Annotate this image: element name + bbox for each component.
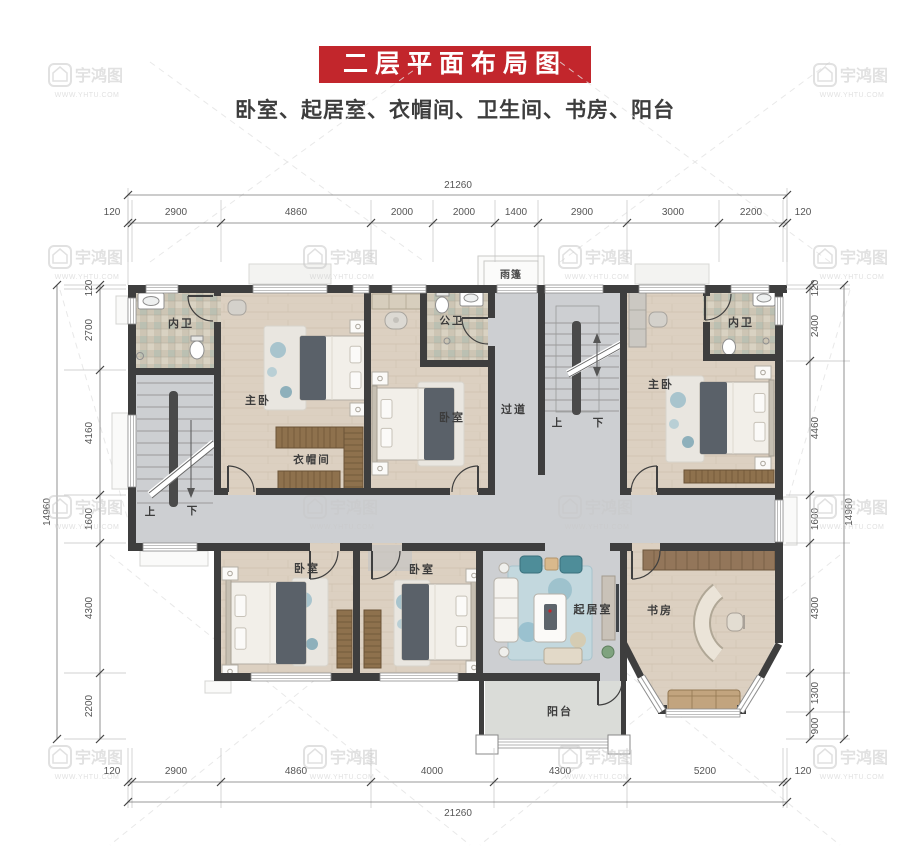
dim-label: 1400 (505, 207, 528, 218)
toilet (436, 297, 449, 313)
wall (420, 360, 495, 367)
window (639, 285, 705, 293)
dim-label: 2000 (453, 207, 476, 218)
wall (221, 543, 310, 551)
window (775, 297, 783, 325)
room-label-master-tr: 主卧 (648, 377, 674, 391)
watermark: 宇鸿图WWW.YHTU.COM (304, 246, 378, 281)
watermark: 宇鸿图WWW.YHTU.COM (559, 246, 633, 281)
dim-label: 4860 (285, 207, 308, 218)
wall (621, 681, 626, 736)
window (128, 298, 136, 324)
nightstand (372, 372, 388, 385)
watermark: 宇鸿图WWW.YHTU.COM (814, 746, 888, 781)
wall (128, 368, 221, 375)
dim-label: 2000 (391, 207, 414, 218)
wall (402, 543, 545, 551)
watermark-brand: 宇鸿图 (585, 748, 633, 767)
window (392, 285, 426, 293)
window (128, 415, 136, 487)
window (498, 739, 608, 748)
window (251, 673, 331, 681)
watermark-brand: 宇鸿图 (840, 748, 888, 767)
window-sill (116, 296, 128, 324)
watermark-url: WWW.YHTU.COM (55, 524, 120, 531)
window (545, 285, 603, 293)
dim-label: 4300 (810, 596, 821, 619)
stairs-down-label: 下 (593, 417, 606, 429)
bed (300, 334, 370, 402)
dim-label: 2400 (810, 314, 821, 337)
watermark: 宇鸿图WWW.YHTU.COM (304, 746, 378, 781)
watermark: 宇鸿图WWW.YHTU.COM (814, 496, 888, 531)
watermark-url: WWW.YHTU.COM (565, 274, 630, 281)
dim-label: 4460 (810, 416, 821, 439)
dim-label: 4000 (421, 766, 444, 777)
room-label-bath-tr: 内卫 (728, 315, 754, 329)
dim-label: 2900 (165, 207, 188, 218)
dim-label: 120 (795, 207, 812, 218)
watermark: 宇鸿图WWW.YHTU.COM (49, 496, 123, 531)
dim-label: 21260 (444, 808, 472, 819)
wardrobe (684, 470, 774, 483)
wall (221, 488, 228, 495)
dim-label: 4160 (84, 421, 95, 444)
dim-label: 5200 (694, 766, 717, 777)
wall (353, 543, 360, 681)
watermark-brand: 宇鸿图 (585, 498, 633, 517)
wall (620, 285, 627, 495)
wardrobe-gray (629, 291, 646, 347)
window (731, 285, 769, 293)
watermark-brand: 宇鸿图 (75, 748, 123, 767)
wall (214, 322, 221, 495)
dim-label: 2700 (84, 318, 95, 341)
watermark-brand: 宇鸿图 (840, 248, 888, 267)
wall (483, 673, 600, 681)
room-label-living: 起居室 (573, 602, 613, 616)
wall (538, 285, 545, 475)
sofa (494, 578, 518, 642)
wall (488, 346, 495, 495)
room-label-bed-b2: 卧室 (409, 562, 435, 576)
canopy-label: 雨篷 (500, 268, 522, 281)
watermark-url: WWW.YHTU.COM (310, 524, 375, 531)
wall (657, 488, 775, 495)
dim-label: 120 (795, 766, 812, 777)
dim-label: 1300 (810, 681, 821, 704)
toilet (190, 341, 204, 359)
window (380, 673, 458, 681)
watermark-brand: 宇鸿图 (330, 748, 378, 767)
window-sill (783, 497, 797, 545)
watermark-brand: 宇鸿图 (585, 248, 633, 267)
watermark-brand: 宇鸿图 (330, 248, 378, 267)
nightstand (350, 320, 366, 333)
wall (488, 285, 495, 318)
dim-label: 2900 (571, 207, 594, 218)
dim-label: 3000 (662, 207, 685, 218)
wall (703, 354, 782, 361)
room-label-cloak: 衣帽间 (293, 453, 331, 466)
hallway-floor (132, 495, 775, 543)
bed (226, 580, 306, 666)
watermark-url: WWW.YHTU.COM (310, 274, 375, 281)
watermark: 宇鸿图WWW.YHTU.COM (49, 64, 123, 99)
window-sill (112, 413, 128, 489)
wall (364, 285, 371, 495)
dim-label: 120 (84, 279, 95, 296)
stairs-up-label: 上 (552, 416, 565, 429)
watermark-url: WWW.YHTU.COM (565, 774, 630, 781)
window (353, 285, 369, 293)
room-label-study: 书房 (647, 603, 673, 617)
window (253, 285, 327, 293)
dim-label: 900 (810, 717, 821, 734)
dim-label: 2200 (740, 207, 763, 218)
wall (256, 488, 371, 495)
dim-label: 120 (104, 207, 121, 218)
dim-label: 21260 (444, 180, 472, 191)
nightstand (222, 567, 238, 580)
cabinet (372, 294, 422, 309)
watermark-url: WWW.YHTU.COM (820, 774, 885, 781)
watermark-brand: 宇鸿图 (330, 498, 378, 517)
wall (476, 543, 483, 681)
wall (660, 543, 783, 551)
watermark: 宇鸿图WWW.YHTU.COM (49, 746, 123, 781)
wall (620, 543, 627, 681)
watermark: 宇鸿图WWW.YHTU.COM (814, 64, 888, 99)
room-label-bath-pub: 公卫 (440, 315, 465, 327)
watermark: 宇鸿图WWW.YHTU.COM (559, 746, 633, 781)
dim-label: 2900 (165, 766, 188, 777)
wardrobe (337, 610, 352, 668)
dim-label: 4300 (84, 596, 95, 619)
window (775, 500, 783, 542)
floorplan-drawing: 雨篷 (0, 0, 910, 861)
window (146, 285, 178, 293)
watermark-url: WWW.YHTU.COM (55, 774, 120, 781)
watermark: 宇鸿图WWW.YHTU.COM (49, 246, 123, 281)
watermark-url: WWW.YHTU.COM (55, 274, 120, 281)
wall (775, 543, 783, 643)
wall (479, 681, 484, 736)
watermark-url: WWW.YHTU.COM (55, 92, 120, 99)
nightstand (755, 457, 771, 470)
window (497, 285, 537, 293)
dim-label: 2200 (84, 694, 95, 717)
corridor-floor (488, 289, 627, 495)
wardrobe (276, 427, 344, 448)
window (666, 709, 740, 717)
rain-canopy: 雨篷 (478, 256, 544, 286)
desk-chair (727, 613, 743, 631)
nightstand (350, 403, 366, 416)
watermark-url: WWW.YHTU.COM (820, 92, 885, 99)
wardrobe (364, 610, 381, 668)
watermark-url: WWW.YHTU.COM (310, 774, 375, 781)
floorplan-page: 二层平面布局图 卧室、起居室、衣帽间、卫生间、书房、阳台 (0, 0, 910, 861)
room-label-bath-tl: 内卫 (168, 316, 194, 330)
wall (703, 322, 710, 361)
watermark: 宇鸿图WWW.YHTU.COM (814, 246, 888, 281)
watermark-brand: 宇鸿图 (840, 498, 888, 517)
watermark-url: WWW.YHTU.COM (820, 524, 885, 531)
plant (602, 646, 614, 658)
dim-label: 4860 (285, 766, 308, 777)
armchair (560, 556, 582, 573)
watermark-brand: 宇鸿图 (840, 66, 888, 85)
room-label-corridor: 过道 (501, 402, 527, 416)
wall (214, 543, 221, 681)
window-sill (205, 681, 231, 693)
room-label-balcony: 阳台 (547, 704, 573, 718)
bed (402, 582, 476, 662)
room-label-bed-mid: 卧室 (439, 410, 465, 424)
ottoman (544, 648, 582, 664)
bed (372, 386, 454, 462)
dim-label: 14960 (42, 498, 53, 526)
armchair (520, 556, 542, 573)
dim-label: 120 (810, 279, 821, 296)
watermark-url: WWW.YHTU.COM (820, 274, 885, 281)
room-label-bed-b1: 卧室 (294, 561, 320, 575)
toilet (723, 339, 736, 355)
wall (420, 285, 427, 367)
wardrobe (344, 427, 363, 492)
room-label-master-tl: 主卧 (245, 393, 271, 407)
stairs-down-label: 下 (187, 505, 200, 517)
watermark-url: WWW.YHTU.COM (565, 524, 630, 531)
wall (214, 285, 221, 296)
nightstand (755, 366, 771, 379)
nightstand (372, 462, 388, 475)
watermark-brand: 宇鸿图 (75, 66, 123, 85)
tv (616, 584, 619, 632)
watermark-brand: 宇鸿图 (75, 248, 123, 267)
window (143, 543, 197, 551)
watermark-brand: 宇鸿图 (75, 498, 123, 517)
window-sill (140, 551, 208, 566)
bed (700, 380, 774, 456)
stairs-up-label: 上 (145, 505, 158, 518)
wall (371, 488, 450, 495)
